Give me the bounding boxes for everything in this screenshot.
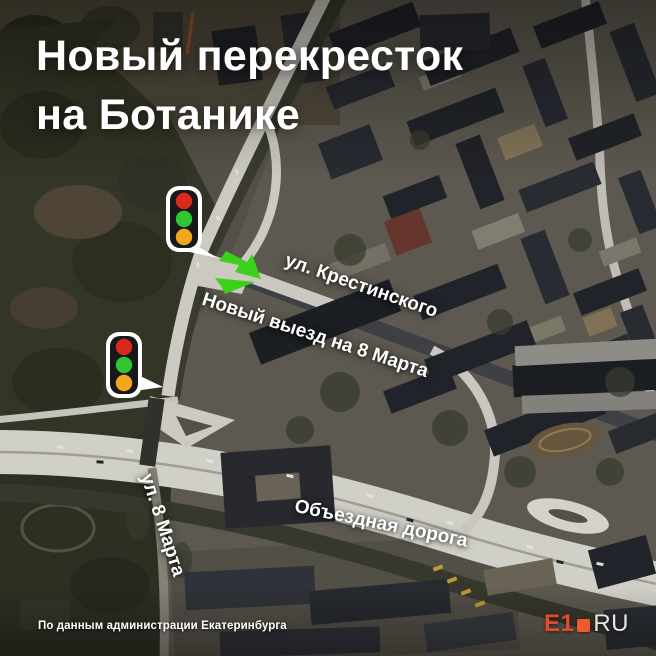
title-line-2: на Ботанике: [36, 86, 463, 145]
logo-square-icon: [577, 619, 590, 632]
infographic: Новый перекресток на Ботанике ул. Крести…: [0, 0, 656, 656]
e1-logo: E1 RU: [544, 612, 629, 636]
attribution-text: По данным администрации Екатеринбурга: [38, 620, 287, 632]
logo-ru-text: RU: [593, 612, 629, 636]
page-title: Новый перекресток на Ботанике: [36, 27, 463, 146]
title-line-1: Новый перекресток: [36, 27, 463, 86]
logo-e1-text: E1: [544, 612, 574, 636]
